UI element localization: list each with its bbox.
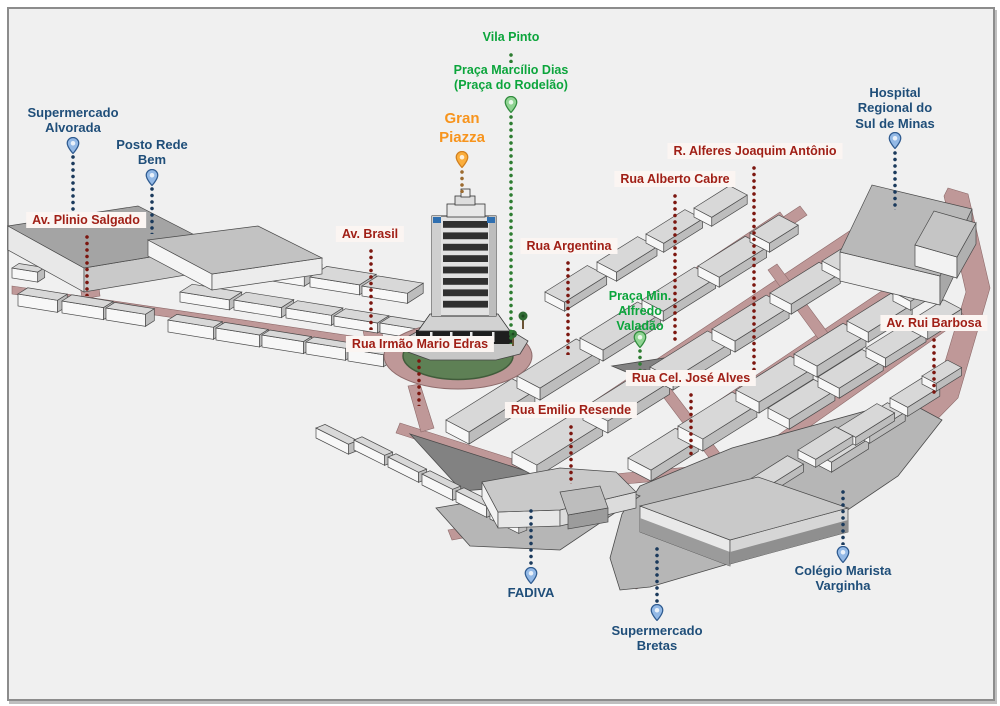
label-praca-marcilio-dias: Praça Marcílio Dias (Praça do Rodelão) <box>454 63 569 93</box>
city-3d-map <box>0 0 1000 706</box>
leader-alvorada <box>70 154 76 216</box>
leader-praca-valadao <box>637 348 643 370</box>
map-pin-icon <box>837 546 850 563</box>
leader-fadiva <box>528 508 534 566</box>
leader-rua-argentina <box>565 260 571 355</box>
map-pin-icon <box>889 132 902 149</box>
label-av-rui-barbosa: Av. Rui Barbosa <box>880 315 987 331</box>
map-figure: Vila Pinto Praça Marcílio Dias (Praça do… <box>0 0 1000 706</box>
leader-praca-marcilio <box>508 114 514 344</box>
label-colegio-marista: Colégio Marista Varginha <box>795 563 892 594</box>
leader-rua-irmao <box>416 358 422 406</box>
map-pin-icon <box>651 604 664 621</box>
map-pin-icon <box>456 151 469 168</box>
leader-rua-emilio <box>568 424 574 484</box>
leader-rua-cel <box>688 392 694 456</box>
label-rua-emilio-resende: Rua Emilio Resende <box>505 402 637 418</box>
label-vila-pinto: Vila Pinto <box>483 30 540 45</box>
leader-colegio <box>840 489 846 545</box>
leader-av-plinio <box>84 234 90 296</box>
label-rua-cel-jose-alves: Rua Cel. José Alves <box>626 370 756 386</box>
leader-gran-piazza <box>459 169 465 193</box>
label-rua-argentina: Rua Argentina <box>521 238 618 254</box>
map-pin-icon <box>525 567 538 584</box>
label-rua-irmao-mario-edras: Rua Irmão Mario Edras <box>346 336 494 352</box>
label-av-plinio-salgado: Av. Plinio Salgado <box>26 212 146 228</box>
leader-av-rui-barbosa <box>931 337 937 395</box>
label-rua-alberto-cabre: Rua Alberto Cabre <box>614 171 735 187</box>
leader-r-alferes <box>751 165 757 373</box>
label-gran-piazza: Gran Piazza <box>439 110 485 148</box>
leader-posto <box>149 186 155 234</box>
label-posto-rede-bem: Posto Rede Bem <box>116 137 188 168</box>
label-fadiva: FADIVA <box>508 585 555 600</box>
label-supermercado-bretas: Supermercado Bretas <box>611 623 702 654</box>
map-pin-icon <box>634 331 647 348</box>
label-praca-min-alfredo-valadao: Praça Min. Alfredo Valadão <box>609 289 672 333</box>
label-av-brasil: Av. Brasil <box>336 226 404 242</box>
leader-av-brasil <box>368 248 374 330</box>
label-hospital-regional: Hospital Regional do Sul de Minas <box>855 85 934 131</box>
leader-hospital <box>892 150 898 210</box>
map-pin-icon <box>146 169 159 186</box>
label-r-alferes-joaquim-antonio: R. Alferes Joaquim Antônio <box>668 143 843 159</box>
map-pin-icon <box>67 137 80 154</box>
map-pin-icon <box>505 96 518 113</box>
leader-vila-pinto <box>508 52 514 63</box>
leader-bretas <box>654 546 660 603</box>
leader-rua-alberto-cabre <box>672 193 678 343</box>
label-supermercado-alvorada: Supermercado Alvorada <box>27 105 118 136</box>
